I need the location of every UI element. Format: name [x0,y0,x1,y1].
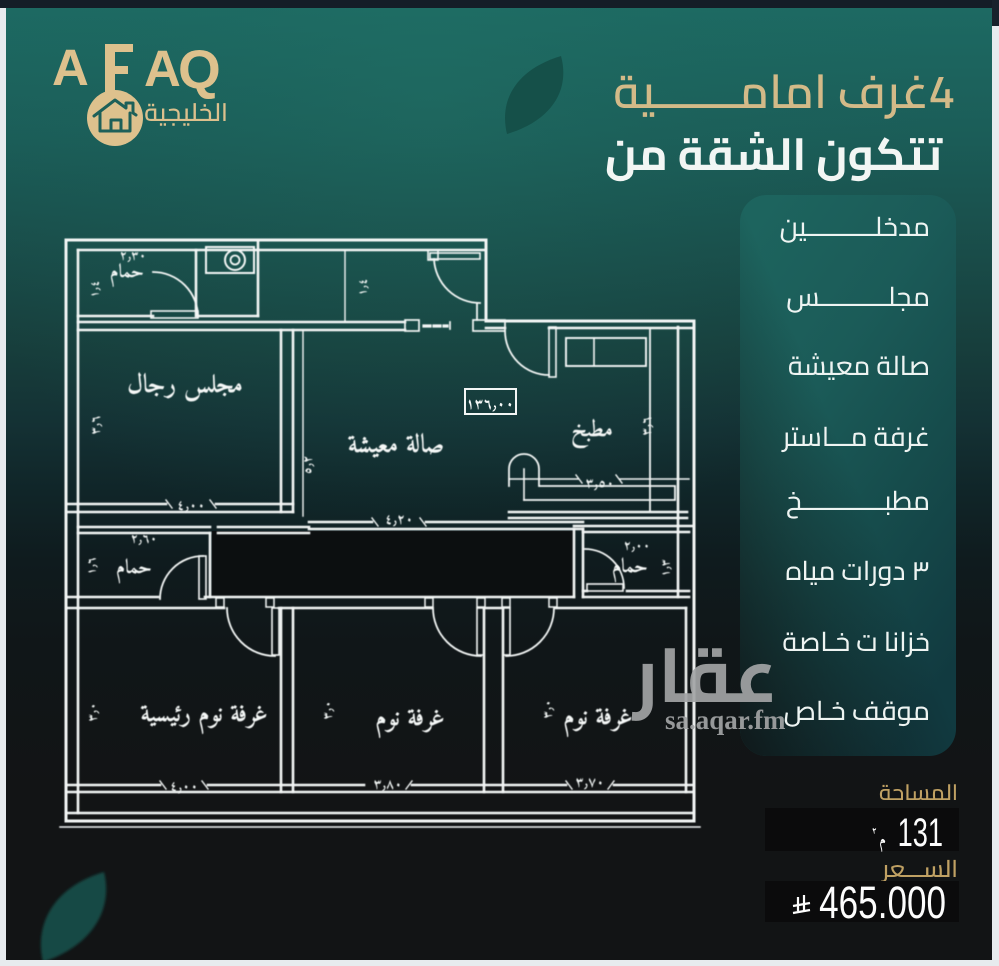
svg-text:465.000: 465.000 [819,877,946,928]
svg-text:sa.aqar.fm: sa.aqar.fm [665,705,786,735]
svg-text:131: 131 [898,811,943,855]
svg-text:A: A [144,40,181,97]
svg-text:Q: Q [178,38,221,100]
svg-text:A: A [52,39,89,96]
